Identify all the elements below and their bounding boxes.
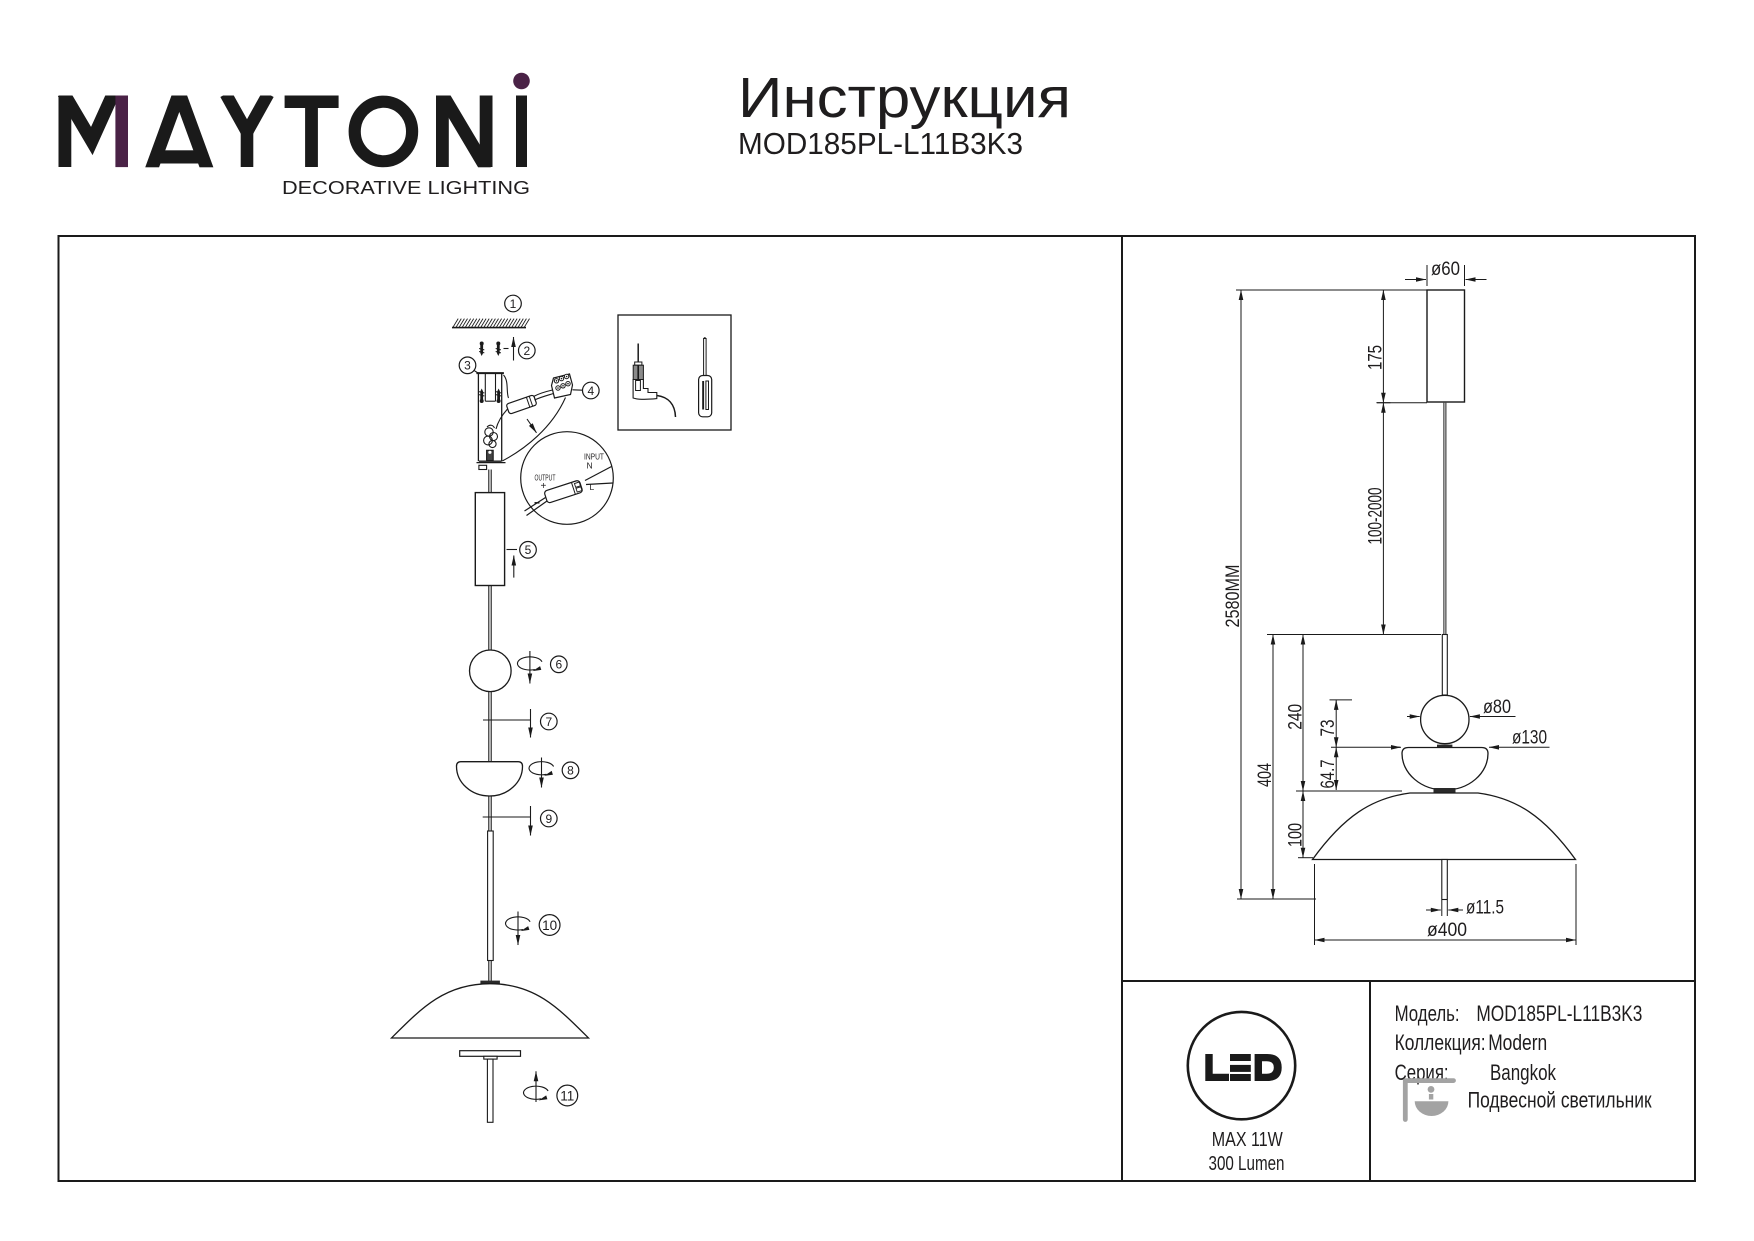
svg-text:10: 10 xyxy=(542,918,557,933)
svg-text:9: 9 xyxy=(545,812,552,826)
svg-text:Коллекция:: Коллекция: xyxy=(1395,1030,1486,1055)
svg-text:175: 175 xyxy=(1365,345,1386,370)
svg-text:ø130: ø130 xyxy=(1512,728,1547,749)
svg-text:3: 3 xyxy=(464,359,471,373)
svg-text:6: 6 xyxy=(555,658,562,672)
svg-text:Инструкция: Инструкция xyxy=(738,66,1071,130)
svg-text:2580MM: 2580MM xyxy=(1223,565,1244,628)
svg-text:MAX 11W: MAX 11W xyxy=(1212,1129,1283,1151)
svg-text:DECORATIVE LIGHTING: DECORATIVE LIGHTING xyxy=(282,178,530,198)
svg-text:8: 8 xyxy=(567,764,574,778)
svg-text:4: 4 xyxy=(587,384,594,398)
svg-text:ø60: ø60 xyxy=(1431,259,1460,280)
svg-text:2: 2 xyxy=(523,344,530,358)
svg-text:Modern: Modern xyxy=(1488,1030,1547,1055)
svg-text:404: 404 xyxy=(1255,763,1276,787)
svg-text:7: 7 xyxy=(545,715,552,729)
svg-text:100-2000: 100-2000 xyxy=(1365,488,1386,545)
svg-text:100: 100 xyxy=(1285,823,1306,847)
svg-text:ø400: ø400 xyxy=(1427,920,1467,941)
svg-text:+: + xyxy=(541,481,547,492)
svg-text:73: 73 xyxy=(1318,720,1339,737)
svg-text:Модель:: Модель: xyxy=(1395,1001,1460,1026)
svg-text:Bangkok: Bangkok xyxy=(1490,1060,1557,1085)
svg-text:5: 5 xyxy=(525,543,532,557)
svg-text:11: 11 xyxy=(560,1088,574,1103)
svg-text:ø11.5: ø11.5 xyxy=(1466,898,1504,919)
svg-text:300 Lumen: 300 Lumen xyxy=(1209,1153,1285,1175)
svg-text:ø80: ø80 xyxy=(1483,697,1511,718)
svg-text:L: L xyxy=(590,482,595,492)
svg-text:1: 1 xyxy=(510,297,517,311)
svg-text:MOD185PL-L11B3K3: MOD185PL-L11B3K3 xyxy=(1476,1001,1642,1026)
svg-text:N: N xyxy=(587,461,593,471)
svg-text:64.7: 64.7 xyxy=(1318,760,1339,789)
svg-text:MOD185PL-L11B3K3: MOD185PL-L11B3K3 xyxy=(738,126,1023,161)
svg-text:240: 240 xyxy=(1285,704,1306,730)
svg-text:Подвесной светильник: Подвесной светильник xyxy=(1468,1088,1652,1113)
